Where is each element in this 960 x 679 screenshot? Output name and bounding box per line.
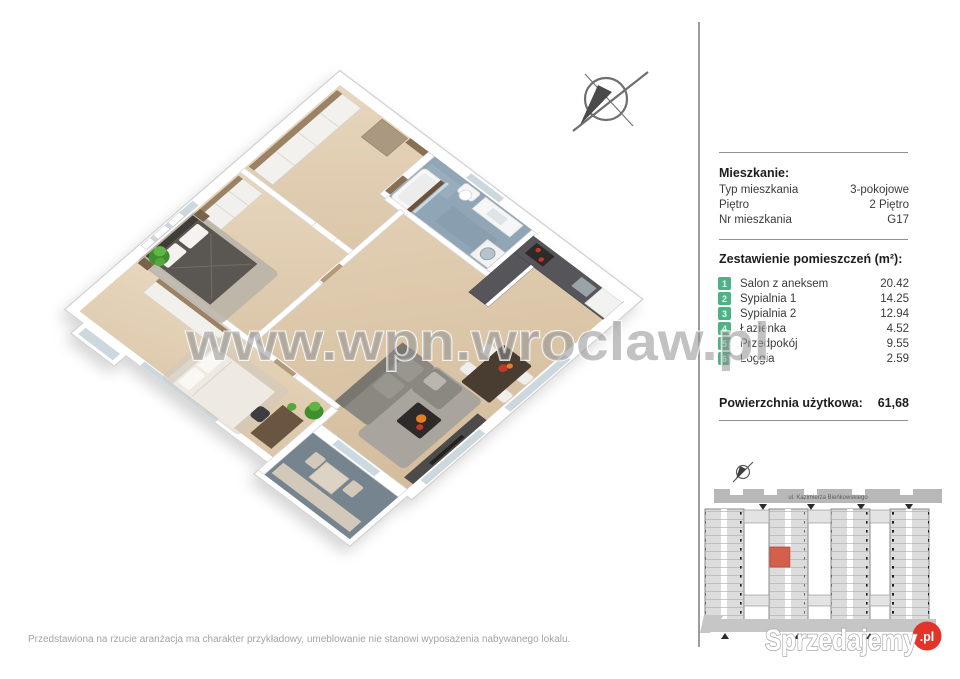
inner-road [704, 619, 936, 632]
building-wing [705, 509, 744, 631]
apartment-3d [51, 71, 643, 550]
compass-icon [573, 72, 648, 131]
building-wing [890, 509, 929, 631]
listing-image: Mieszkanie: Typ mieszkania 3-pokojowe Pi… [0, 0, 960, 679]
street: ul. Kazimierza Bieńkowskiego [714, 489, 942, 503]
site-plan: ul. Kazimierza Bieńkowskiego [700, 455, 950, 645]
bottom-markers [721, 633, 874, 639]
street-label: ul. Kazimierza Bieńkowskiego [788, 495, 868, 501]
site-compass-icon [733, 462, 753, 482]
building-wing [831, 509, 870, 631]
buildings [700, 509, 936, 639]
building-wing [769, 509, 808, 631]
highlighted-unit [770, 547, 790, 567]
